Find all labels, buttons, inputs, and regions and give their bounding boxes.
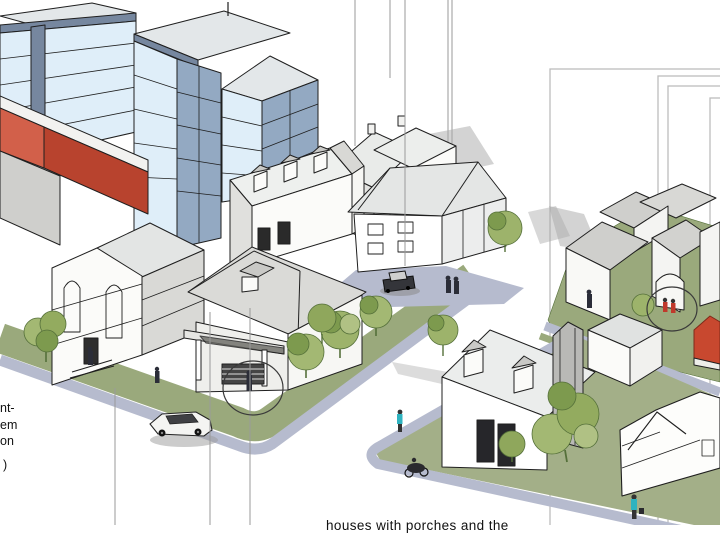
- tree: [428, 315, 458, 356]
- pedestrian-cyan: [397, 410, 403, 432]
- neighborhood-rendering: [0, 0, 720, 525]
- porch-steps: [222, 364, 264, 384]
- bottom-caption-fragment: houses with porches and the: [326, 519, 509, 533]
- left-fragment-4: ): [3, 459, 7, 472]
- pedestrian: [155, 367, 160, 383]
- white-apartment-building: [52, 223, 204, 385]
- cast-shadow: [392, 362, 448, 384]
- pedestrian: [587, 290, 592, 308]
- left-fragment-1: nt-: [0, 402, 15, 415]
- page: nt- em on ) houses with porches and the: [0, 0, 720, 525]
- barrel-vault-cottage: [656, 274, 684, 310]
- porch-post: [196, 340, 201, 380]
- left-fragment-2: em: [0, 419, 17, 432]
- pedestrian: [246, 370, 252, 391]
- left-fragment-3: on: [0, 435, 14, 448]
- pedestrian: [88, 347, 93, 365]
